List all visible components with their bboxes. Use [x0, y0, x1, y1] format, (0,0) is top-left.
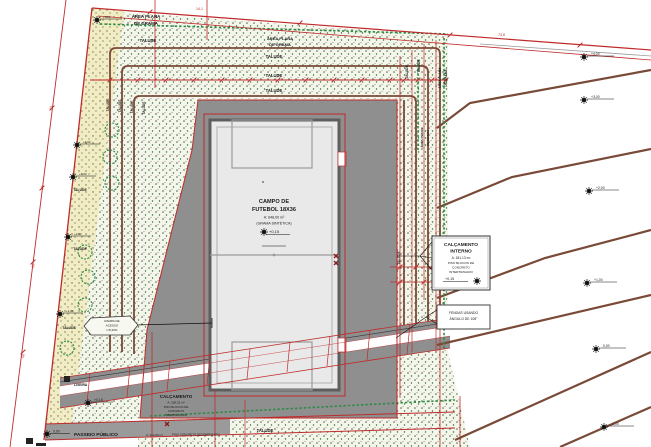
area-plana-right-l1: ÁREA PLANA	[437, 67, 442, 88]
passeio-elevation: 0,00	[53, 430, 60, 434]
ramp-callout-line-3: i=8,33%	[107, 328, 118, 332]
talude-right-vert-3: TALUDE	[397, 251, 401, 265]
calcamento-mat-3: INTERTRAVADO	[165, 413, 188, 417]
talude-bottom: TALUDE	[257, 428, 274, 433]
talude-right-vert-1: TALUDE	[405, 65, 409, 79]
talude-left-2: TALUDE	[73, 247, 87, 251]
area-plana-right-l2: DE GRAMA	[444, 69, 448, 87]
ramp-callout-line-1: RAMPA DE	[104, 319, 119, 323]
area-plana-topleft-l1: ÁREA PLANA	[132, 14, 161, 19]
calcamento-interno-mat-1: PISO BLOCOS DE	[448, 261, 474, 265]
site-plan-svg: 15 18 20 50 14,1 74,8 ÁREA PLANA DE GRAM…	[0, 0, 651, 447]
talude-band-1: TALUDE	[266, 54, 283, 59]
area-plana-topleft-l2: DE GRAMA	[134, 21, 159, 26]
field-area: A: 648,00 m²	[264, 216, 285, 220]
right-elev-1: +3,00	[591, 95, 600, 99]
dim-left-3: 20	[31, 264, 36, 269]
calcamento-interno-title-1: CALÇAMENTO	[444, 242, 478, 248]
talude-band-3: TALUDE	[266, 88, 283, 93]
right-elev-0: +4,00	[591, 52, 600, 56]
corner-markers	[26, 438, 46, 446]
dim-top-1: 14,1	[196, 7, 203, 11]
dim-left-2: 18	[40, 186, 45, 191]
passeio-area: A: 112,06 m²	[146, 433, 163, 437]
talude-vert-1: TALUDE	[106, 99, 110, 112]
dim-left-4: 50	[21, 354, 26, 359]
right-elev-2: +2,00	[596, 186, 605, 190]
right-elev-3: +1,00	[594, 278, 603, 282]
right-elev-5: -1,00	[611, 422, 619, 426]
field-elevation: +0,15	[269, 229, 280, 234]
talude-left-3: TALUDE	[62, 326, 76, 330]
bottom-elevation-value: +0,15	[94, 398, 103, 402]
calcamento-interno-area: A: 181,13 m²	[452, 256, 472, 260]
calcamento-interno-mat-3: INTERTRAVADO	[449, 270, 473, 274]
calcamento-area: A: 258,03 m²	[167, 401, 184, 405]
note-box-line-1: FENDAS USANDO	[449, 311, 479, 315]
left-elev-0: +5,00	[103, 15, 111, 19]
area-plana-right2-l2: DE GRAMA	[426, 129, 430, 146]
calcamento-interno-title-2: INTERNO	[450, 249, 472, 255]
area-plana-topband-l1: ÁREA PLANA	[267, 36, 293, 41]
field-title-1: CAMPO DE	[259, 199, 289, 205]
talude-right-vert-2: TALUDE	[417, 59, 421, 73]
lixeira-label: LIXEIRA	[74, 383, 88, 387]
area-plana-right2-l1: ÁREA PLANA	[419, 127, 424, 147]
right-elev-4: 0,00	[603, 344, 610, 348]
left-elev-4: +1,00	[66, 309, 74, 313]
dim-left-1: 15	[49, 106, 54, 111]
talude-vert-4: TALUDE	[142, 102, 146, 115]
soccer-field	[210, 120, 346, 390]
field-surface: (GRAMA SINTÉTICA)	[256, 221, 291, 226]
left-elev-3: +2,00	[74, 232, 82, 236]
left-elev-1: +4,00	[83, 140, 91, 144]
calcamento-title: CALÇAMENTO	[160, 394, 193, 399]
talude-left-1: TALUDE	[73, 188, 87, 192]
passeio-material: PISO CONCRETO DESEMPENADO	[172, 433, 220, 437]
talude-topleft: TALUDE	[140, 38, 157, 43]
passeio-title: PASSEIO PÚBLICO	[74, 431, 118, 438]
talude-vert-2: TALUDE	[118, 100, 122, 113]
calcamento-interno-elevation: +0,15	[445, 277, 454, 281]
area-plana-topband-l2: DE GRAMA	[269, 42, 291, 47]
note-box-line-2: ÂNGULO DE 108°	[450, 317, 479, 321]
ramp-callout-line-2: ACESSO	[106, 324, 119, 328]
left-elev-2: +3,00	[79, 172, 87, 176]
field-title-2: FUTEBOL 18X36	[252, 207, 296, 213]
calcamento-interno-mat-2: CONCRETO	[452, 266, 470, 270]
dim-top-2: 74,8	[498, 33, 505, 37]
talude-band-2: TALUDE	[266, 73, 283, 78]
site-plan-canvas: 15 18 20 50 14,1 74,8 ÁREA PLANA DE GRAM…	[0, 0, 651, 447]
talude-vert-3: TALUDE	[130, 101, 134, 114]
